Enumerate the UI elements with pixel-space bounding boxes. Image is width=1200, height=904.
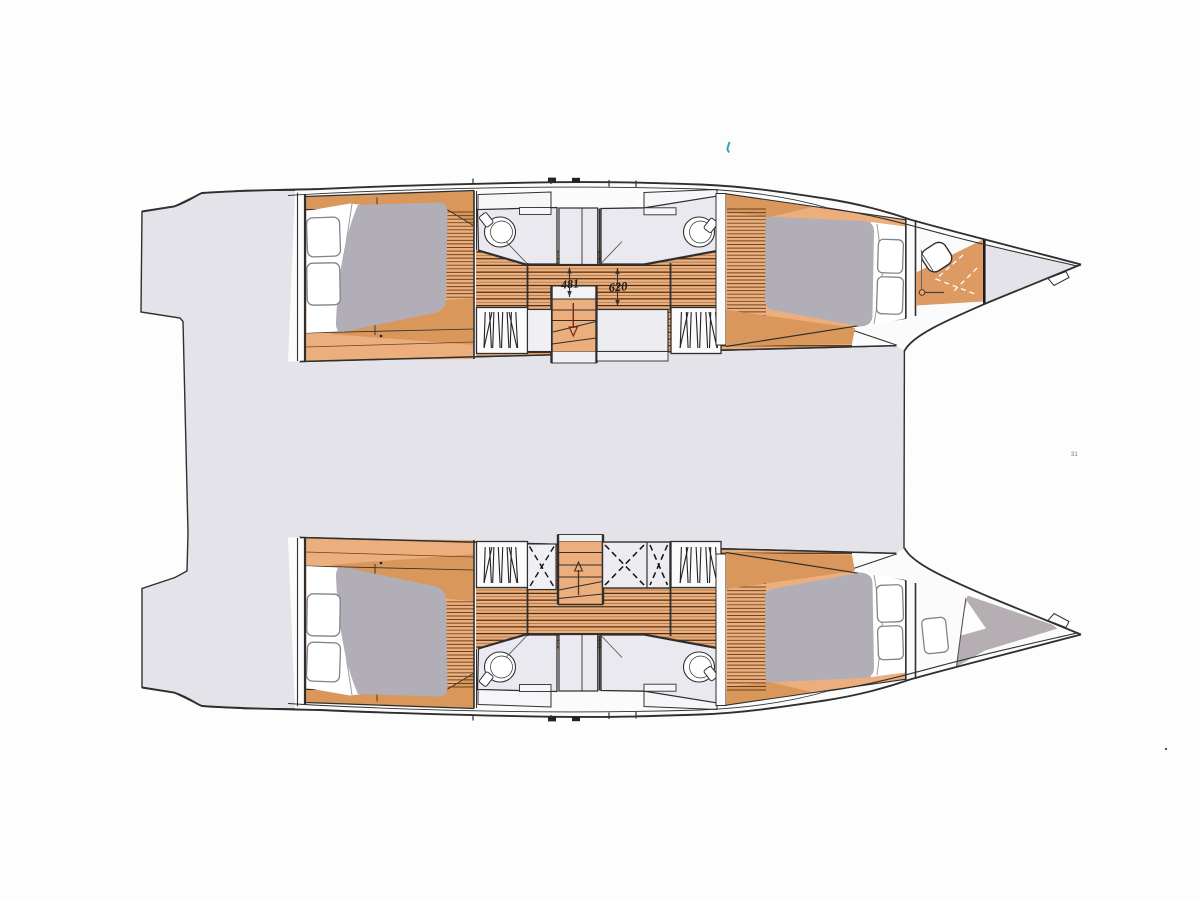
svg-text:620: 620	[608, 279, 629, 295]
svg-text:31: 31	[1071, 452, 1078, 458]
